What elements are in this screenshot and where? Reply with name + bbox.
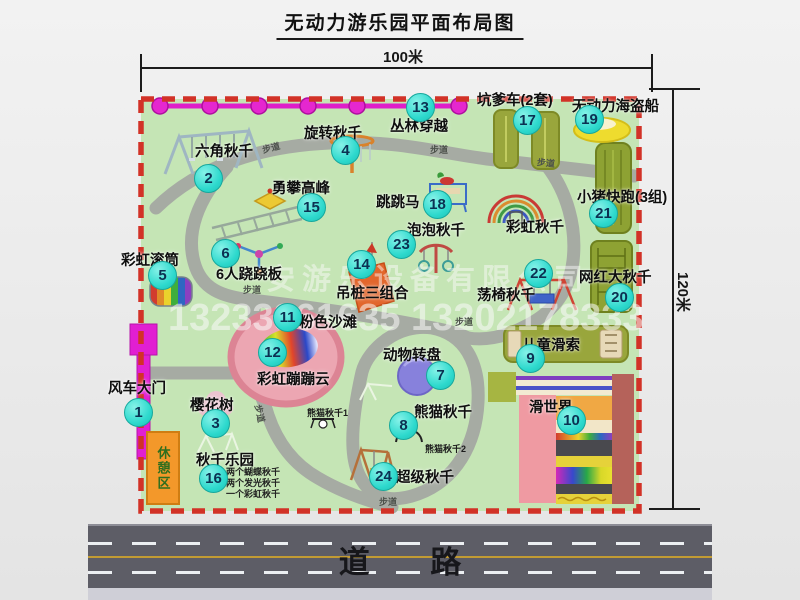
feature-marker-7: 7 [426, 361, 455, 390]
feature-marker-22: 22 [524, 259, 553, 288]
feature-label-piggy-run: 小猪快跑(3组) [577, 186, 667, 207]
road: 道 路 [88, 524, 712, 588]
park-plan-page: 无动力游乐园平面布局图 100米 120米 安游乐设备有限公司 13233861… [0, 0, 800, 600]
feature-marker-5: 5 [148, 261, 177, 290]
feature-label-panda-swing: 熊猫秋千 [414, 401, 472, 422]
feature-label-pit-car: 坑爹车(2套) [477, 89, 553, 110]
feature-label-climbing-peak: 勇攀高峰 [272, 177, 330, 198]
feature-marker-21: 21 [589, 199, 618, 228]
feature-marker-17: 17 [513, 106, 542, 135]
swing-note: 一个彩虹秋千 [226, 489, 280, 500]
feature-marker-10: 10 [557, 406, 586, 435]
page-title: 无动力游乐园平面布局图 [276, 8, 523, 40]
feature-label-rainbow-cloud: 彩虹蹦蹦云 [257, 368, 330, 389]
feature-marker-16: 16 [199, 464, 228, 493]
feature-marker-9: 9 [516, 344, 545, 373]
panda-swing-1-label: 熊猫秋千1 [307, 406, 348, 419]
feature-label-hexagon-swing: 六角秋千 [195, 140, 253, 161]
feature-marker-3: 3 [201, 409, 230, 438]
feature-label-animal-turntable: 动物转盘 [383, 344, 441, 365]
feature-label-bubble-swing: 泡泡秋千 [407, 219, 465, 240]
feature-label-windmill-gate: 风车大门 [108, 377, 166, 398]
swing-park-notes: 两个蝴蝶秋千 两个发光秋千 一个彩虹秋千 [226, 467, 280, 500]
panda-swing-2-label: 熊猫秋千2 [425, 442, 466, 455]
swing-note: 两个发光秋千 [226, 478, 280, 489]
feature-marker-13: 13 [406, 93, 435, 122]
feature-label-rainbow-swing: 彩虹秋千 [506, 216, 564, 237]
feature-label-super-swing: 超级秋千 [396, 466, 454, 487]
feature-label-hanging-piles: 吊桩三组合 [336, 282, 409, 303]
feature-marker-8: 8 [389, 411, 418, 440]
trail-label: 步道 [379, 495, 397, 508]
rest-area-label: 休憩区 [154, 446, 173, 491]
feature-marker-18: 18 [423, 190, 452, 219]
swing-note: 两个蝴蝶秋千 [226, 467, 280, 478]
trail-label: 步道 [455, 315, 473, 328]
road-shoulder [88, 586, 712, 600]
feature-marker-4: 4 [331, 136, 360, 165]
trail-label: 步道 [536, 155, 555, 170]
feature-marker-11: 11 [273, 303, 302, 332]
feature-marker-23: 23 [387, 230, 416, 259]
width-dimension-label: 100米 [383, 46, 423, 67]
feature-marker-24: 24 [369, 462, 398, 491]
feature-marker-15: 15 [297, 193, 326, 222]
feature-label-pink-beach: 粉色沙滩 [299, 311, 357, 332]
feature-label-bounce-horse: 跳跳马 [376, 191, 420, 212]
feature-marker-14: 14 [347, 250, 376, 279]
feature-marker-20: 20 [605, 283, 634, 312]
feature-marker-6: 6 [211, 239, 240, 268]
trail-label: 步道 [243, 283, 261, 296]
height-dimension-label: 120米 [673, 272, 694, 312]
rest-area-box: 休憩区 [146, 431, 180, 505]
feature-marker-1: 1 [124, 398, 153, 427]
feature-label-swing-chair: 荡椅秋千 [477, 284, 535, 305]
feature-marker-19: 19 [575, 105, 604, 134]
feature-marker-12: 12 [258, 338, 287, 367]
trail-label: 步道 [430, 143, 448, 156]
road-label: 道 路 [88, 537, 712, 582]
feature-marker-2: 2 [194, 164, 223, 193]
